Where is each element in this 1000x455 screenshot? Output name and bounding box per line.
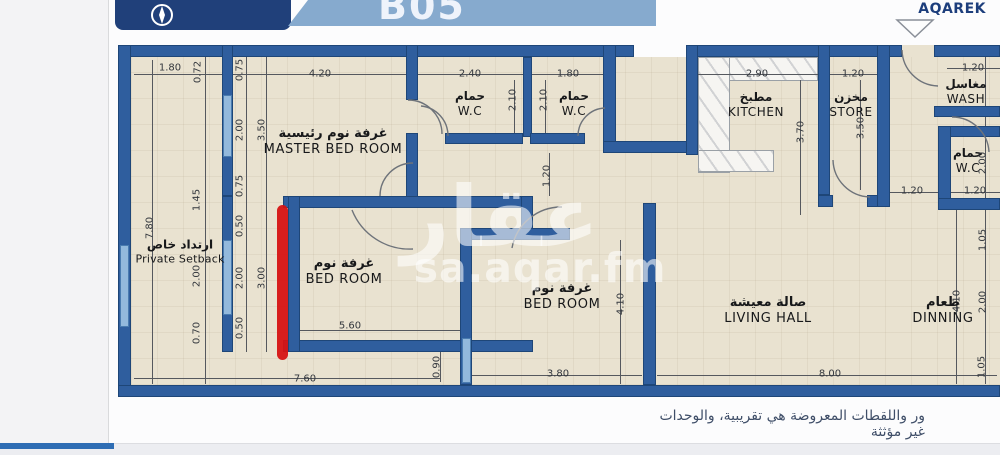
room-name-ar: حمام (455, 89, 485, 104)
room-label-wc2: حمام W.C (559, 89, 589, 119)
red-annotation-line (277, 205, 288, 360)
dim-label: 2.00 (978, 291, 989, 313)
dim-label: 1.80 (159, 63, 181, 74)
room-name-ar: صالة معيشة (724, 295, 812, 311)
dim-label: 4.10 (616, 293, 627, 315)
dim-label: 1.20 (901, 186, 923, 197)
room-name-en: LIVING HALL (724, 311, 812, 327)
room-name-ar: طعام (912, 295, 973, 311)
dim-label: 2.90 (746, 69, 768, 80)
dim-label: 0.50 (235, 317, 246, 339)
room-label-master: غرفة نوم رئيسية MASTER BED ROOM (264, 126, 403, 159)
dim-label: 2.40 (459, 69, 481, 80)
dim-label: 4.10 (952, 290, 963, 312)
room-name-en: Private Setback (135, 253, 224, 267)
room-label-kitchen: مطبخ KITCHEN (728, 90, 784, 120)
dim-label: 5.60 (339, 321, 361, 332)
room-name-en: KITCHEN (728, 105, 784, 120)
dim-label: 7.60 (294, 374, 316, 385)
dim-label: 1.80 (557, 69, 579, 80)
dim-label: 2.00 (192, 265, 203, 287)
room-name-en: BED ROOM (524, 297, 601, 313)
dim-label: 2.00 (235, 119, 246, 141)
room-label-wash: مغاسل WASH (945, 77, 986, 107)
room-name-ar: حمام (559, 89, 589, 104)
dim-label: 0.75 (235, 175, 246, 197)
room-name-ar: مغاسل (945, 77, 986, 92)
room-label-bed1: غرفة نوم BED ROOM (306, 256, 383, 289)
dim-label: 2.10 (539, 89, 550, 111)
room-label-setback: ارتداد خاص Private Setback (135, 238, 224, 267)
dim-label: 3.80 (547, 369, 569, 380)
room-label-wc1: حمام W.C (455, 89, 485, 119)
room-name-en: W.C (559, 104, 589, 119)
room-name-ar: غرفة نوم رئيسية (264, 126, 403, 142)
room-name-en: DINNING (912, 311, 973, 327)
room-name-en: W.C (455, 104, 485, 119)
room-label-living: صالة معيشة LIVING HALL (724, 295, 812, 328)
room-name-ar: غرفة نوم (306, 256, 383, 272)
dim-label: 8.00 (819, 369, 841, 380)
room-name-en: MASTER BED ROOM (264, 142, 403, 158)
dim-label: 4.20 (309, 69, 331, 80)
dim-label: 3.50 (856, 117, 867, 139)
dim-label: 1.05 (977, 356, 988, 378)
dim-label: 1.20 (962, 63, 984, 74)
dim-label: 1.20 (842, 69, 864, 80)
dim-label: 3.00 (257, 267, 268, 289)
dim-label: 0.75 (235, 59, 246, 81)
dim-label: 1.05 (978, 229, 989, 251)
room-name-en: WASH (945, 92, 986, 107)
watermark-domain: sa.aqar.fm (414, 244, 667, 292)
dim-label: 3.50 (257, 119, 268, 141)
dim-label: 2.00 (978, 152, 989, 174)
dim-label: 0.90 (432, 356, 443, 378)
dim-label: 0.70 (192, 322, 203, 344)
room-label-store: مخزن STORE (829, 90, 872, 120)
dim-label: 7.80 (145, 217, 156, 239)
room-name-ar: مخزن (829, 90, 872, 105)
dim-label: 3.70 (796, 121, 807, 143)
dim-label: 1.20 (964, 186, 986, 197)
room-name-ar: ارتداد خاص (135, 238, 224, 253)
footer-accent-bar (0, 443, 114, 449)
room-name-ar: مطبخ (728, 90, 784, 105)
dim-label: 0.50 (235, 215, 246, 237)
disclaimer-text: ور واللقطات المعروضة هي تقريبية، والوحدا… (643, 408, 925, 440)
dim-label: 2.10 (508, 89, 519, 111)
dim-label: 2.00 (235, 267, 246, 289)
footer-band (0, 443, 1000, 455)
room-label-dinning: طعام DINNING (912, 295, 973, 328)
dim-label: 1.45 (192, 189, 203, 211)
dim-label: 0.72 (193, 61, 204, 83)
room-name-en: BED ROOM (306, 272, 383, 288)
